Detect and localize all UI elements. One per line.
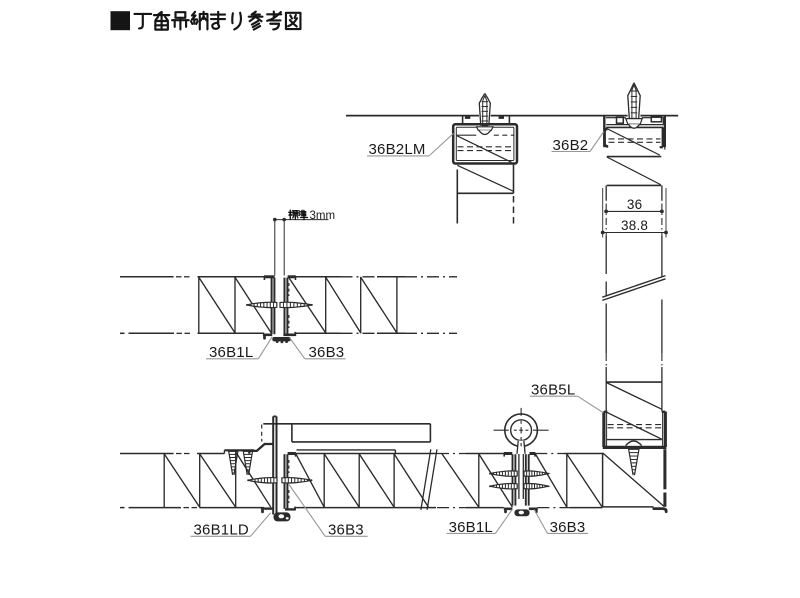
svg-text:38.8: 38.8 [621, 218, 648, 233]
svg-text:3mm: 3mm [310, 210, 336, 222]
svg-text:36: 36 [627, 197, 642, 212]
